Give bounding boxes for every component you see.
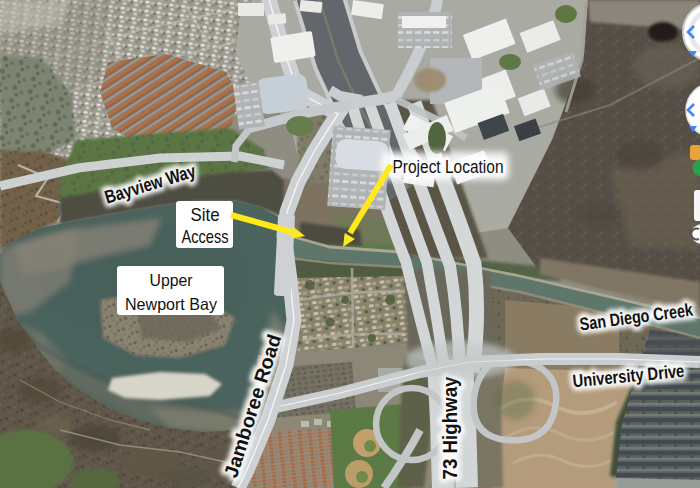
- svg-text:Access: Access: [182, 226, 229, 247]
- svg-text:Newport Bay: Newport Bay: [125, 295, 218, 313]
- svg-text:Site: Site: [191, 204, 220, 225]
- svg-text:Project Location: Project Location: [393, 157, 504, 177]
- svg-text:Upper: Upper: [150, 271, 193, 289]
- svg-text:73 Highway: 73 Highway: [439, 376, 461, 479]
